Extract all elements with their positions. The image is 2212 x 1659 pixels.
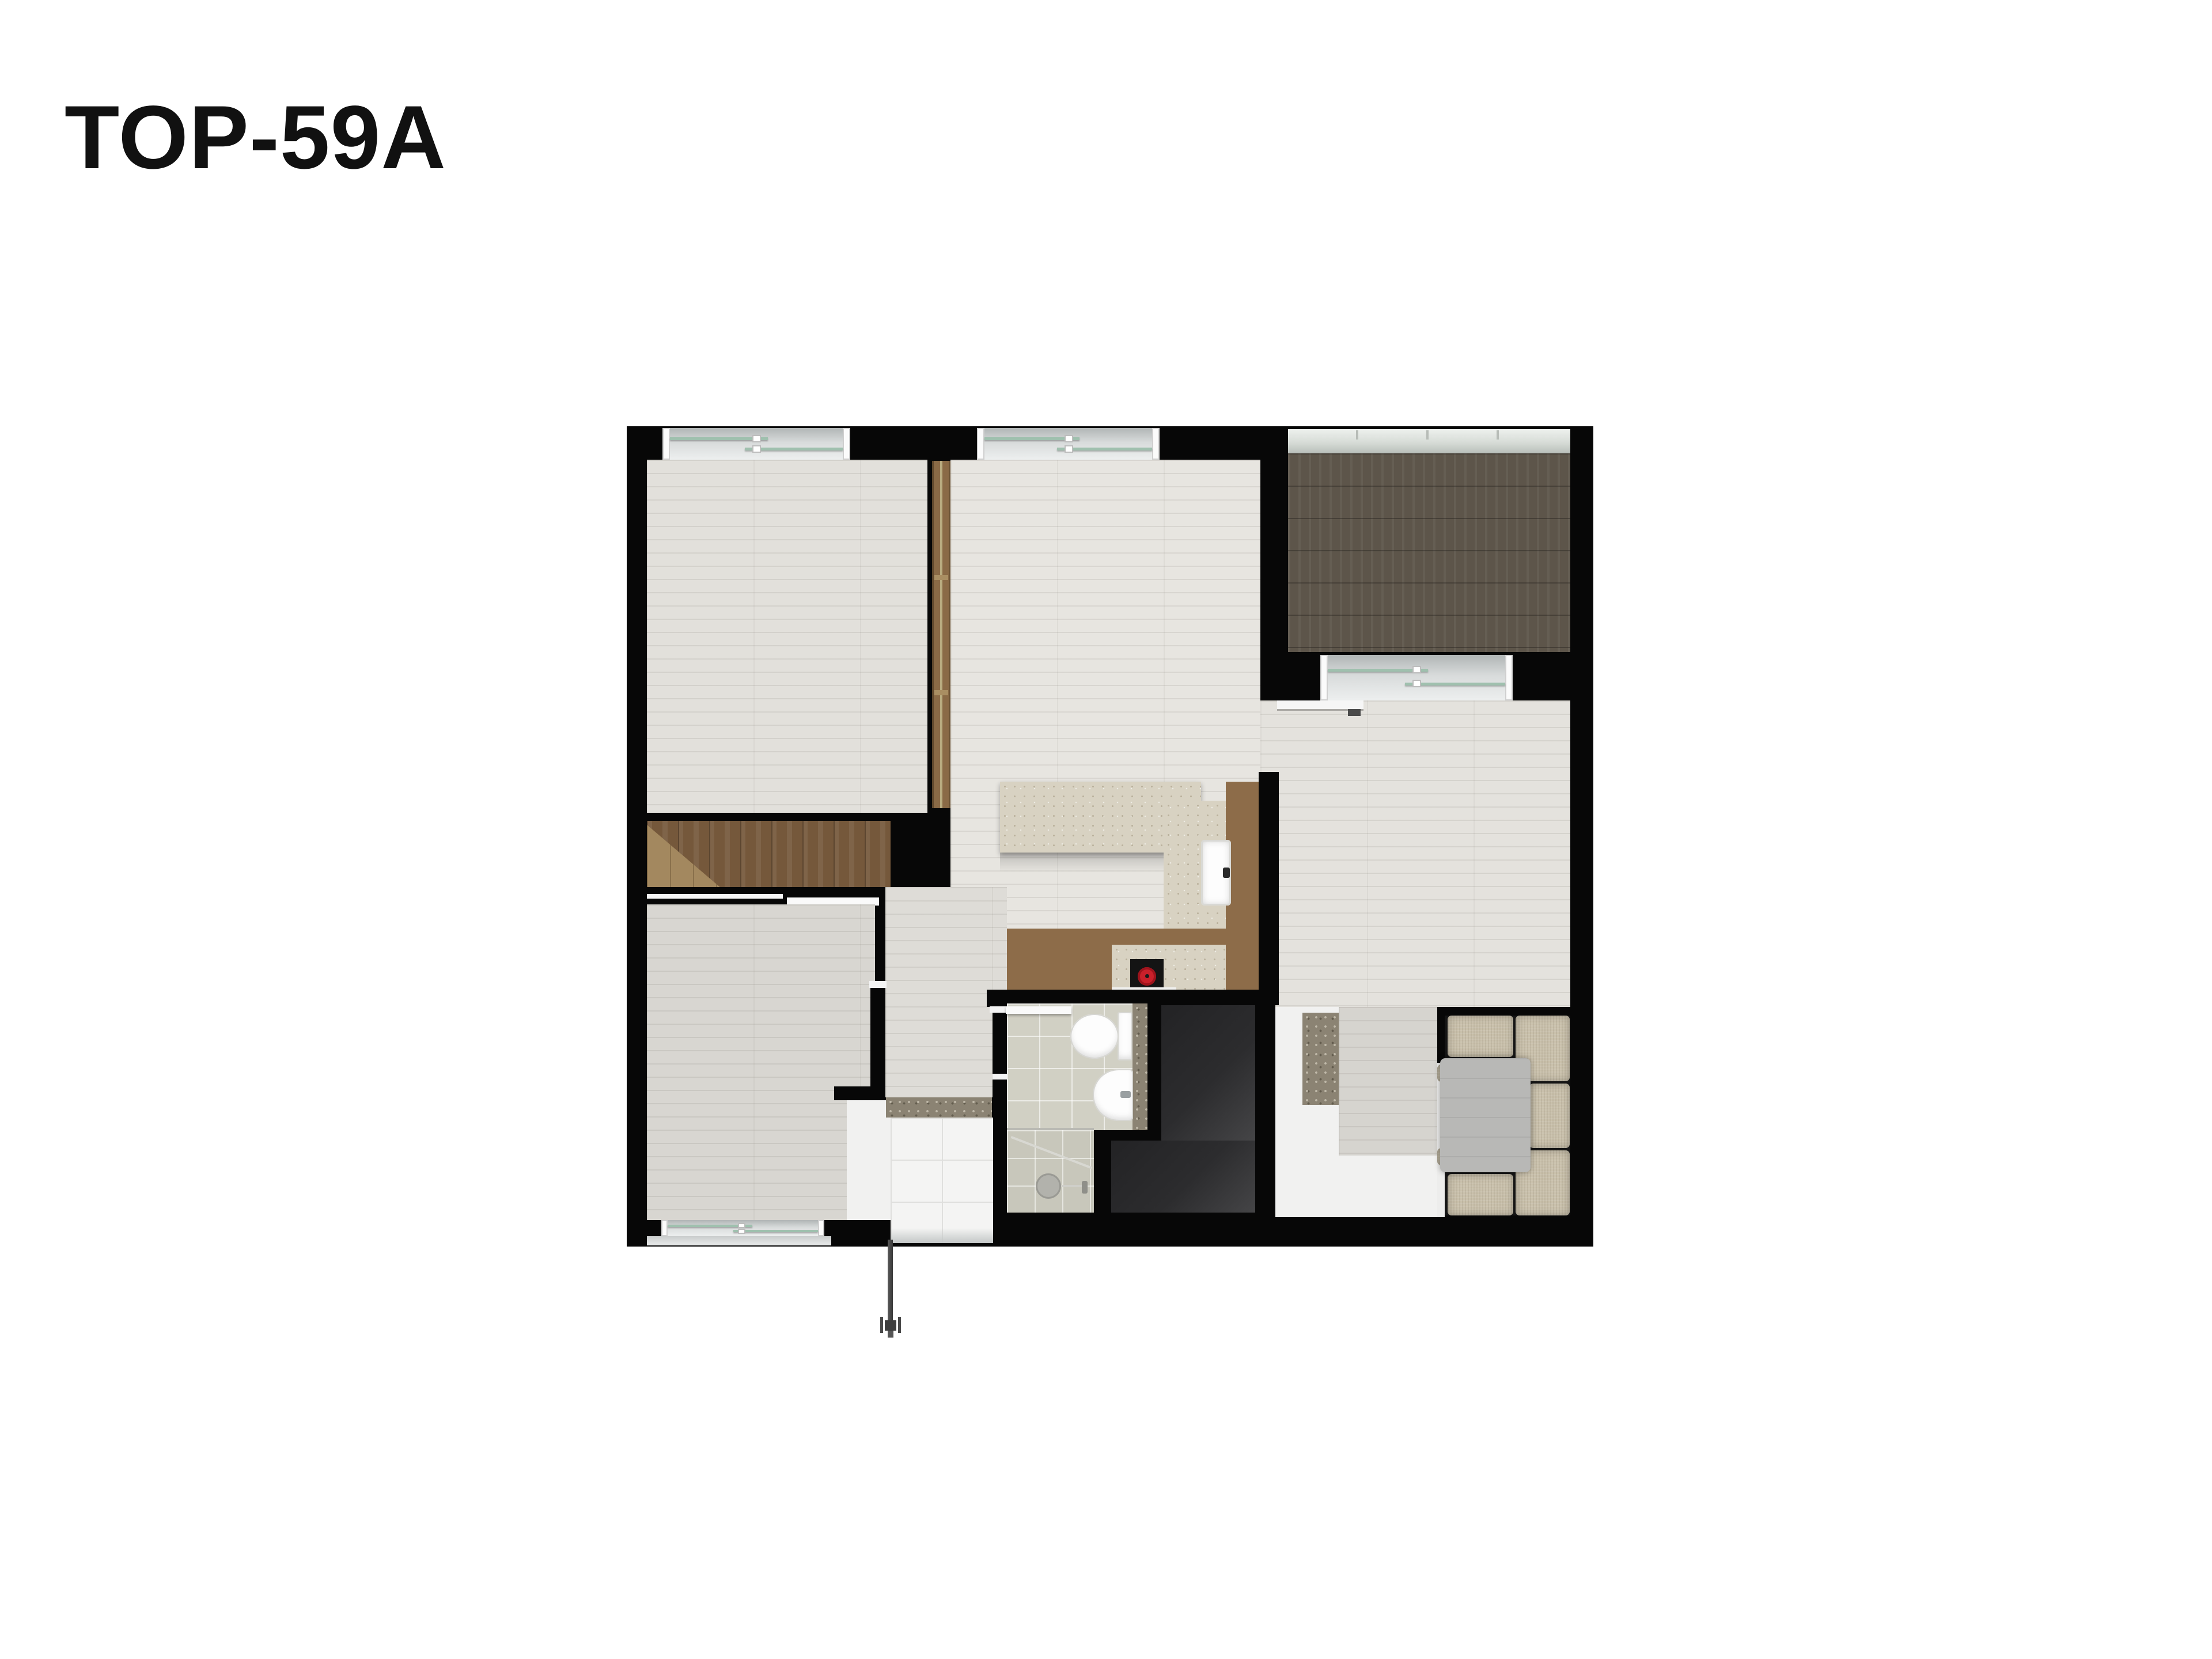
utility-closet-lower: [1111, 1141, 1255, 1213]
door-handle-icon: [885, 1320, 896, 1331]
sofa-cushion: [1448, 1016, 1513, 1057]
window-frame-icon: [843, 428, 850, 460]
sliding-door-bathroom: [1006, 1006, 1071, 1014]
room-bedroom-1: [647, 460, 927, 813]
stairs: [647, 821, 891, 887]
entry-vestibule-tile: [891, 1118, 993, 1243]
faucet-icon: [1223, 868, 1230, 878]
shower-glass-door: [1011, 1136, 1092, 1169]
wall-stub: [834, 1086, 885, 1100]
bathroom-wall: [993, 1003, 1007, 1130]
stairs-landing: [647, 821, 891, 887]
shower-head-icon: [1061, 1185, 1084, 1187]
window-sill: [647, 1236, 831, 1245]
sofa-cushion: [1529, 1084, 1570, 1148]
window-frame-icon: [661, 1220, 668, 1236]
sofa-table: [1440, 1058, 1531, 1172]
room-bedroom-2: [647, 904, 875, 1220]
entry-door-open-leaf: [888, 1240, 893, 1324]
floor-dining-strip: [1339, 1007, 1437, 1156]
room-living-dining: [1260, 700, 1570, 1007]
balcony-parapet: [1288, 429, 1570, 453]
kitchen-sink: [1201, 840, 1231, 906]
window-frame-icon: [818, 1220, 824, 1236]
sliding-partition-bedroom-1: [932, 461, 950, 808]
faucet-icon: [1120, 1091, 1131, 1098]
window-frame-icon: [1505, 655, 1513, 700]
door-handle-icon: [880, 1317, 883, 1333]
kitchen-wall: [1259, 772, 1279, 1005]
sliding-door-track-bedroom-2: [647, 894, 783, 899]
window-frame-icon: [977, 428, 984, 460]
entry-stone-mat: [886, 1097, 992, 1118]
shower: [1007, 1130, 1094, 1213]
sofa-cushion: [1448, 1174, 1513, 1215]
balcony: [1288, 453, 1570, 652]
window-frame-icon: [1320, 655, 1328, 700]
door-jamb: [993, 1074, 1007, 1080]
screenshot: TOP-59A: [0, 0, 2212, 1659]
bathroom-stone-strip: [1132, 1003, 1147, 1130]
entry-stone-mat-vertical: [1302, 1013, 1339, 1105]
toilet: [1070, 1014, 1119, 1059]
kitchen-counter-stone-section: [1112, 945, 1226, 990]
entry-door-handle: [880, 1313, 901, 1339]
window-frame-icon: [662, 428, 670, 460]
window-frame-icon: [1152, 428, 1160, 460]
page-title: TOP-59A: [65, 86, 446, 190]
shower-drain: [1036, 1173, 1061, 1199]
window-bedroom2-bottom: [661, 1220, 824, 1236]
shower-head-icon: [1082, 1181, 1088, 1194]
floor-plan: [627, 426, 1593, 1247]
cooktop: [1130, 959, 1164, 988]
door-jamb: [990, 1006, 1007, 1013]
entry-hall-extension: [1339, 1156, 1437, 1217]
door-handle-icon: [888, 1331, 893, 1338]
window-living-top: [977, 428, 1160, 460]
bedroom-2-wall: [870, 988, 885, 1097]
door-jamb: [869, 981, 887, 988]
toilet-tank: [1118, 1012, 1132, 1060]
entry-closet: [847, 1100, 891, 1220]
window-sill-ledge: [1277, 700, 1363, 709]
door-handle-icon: [1348, 709, 1361, 716]
door-handle-icon: [898, 1317, 901, 1333]
window-balcony-door: [1320, 655, 1513, 700]
window-bedroom1-top: [662, 428, 850, 460]
utility-closet: [1161, 1005, 1255, 1141]
